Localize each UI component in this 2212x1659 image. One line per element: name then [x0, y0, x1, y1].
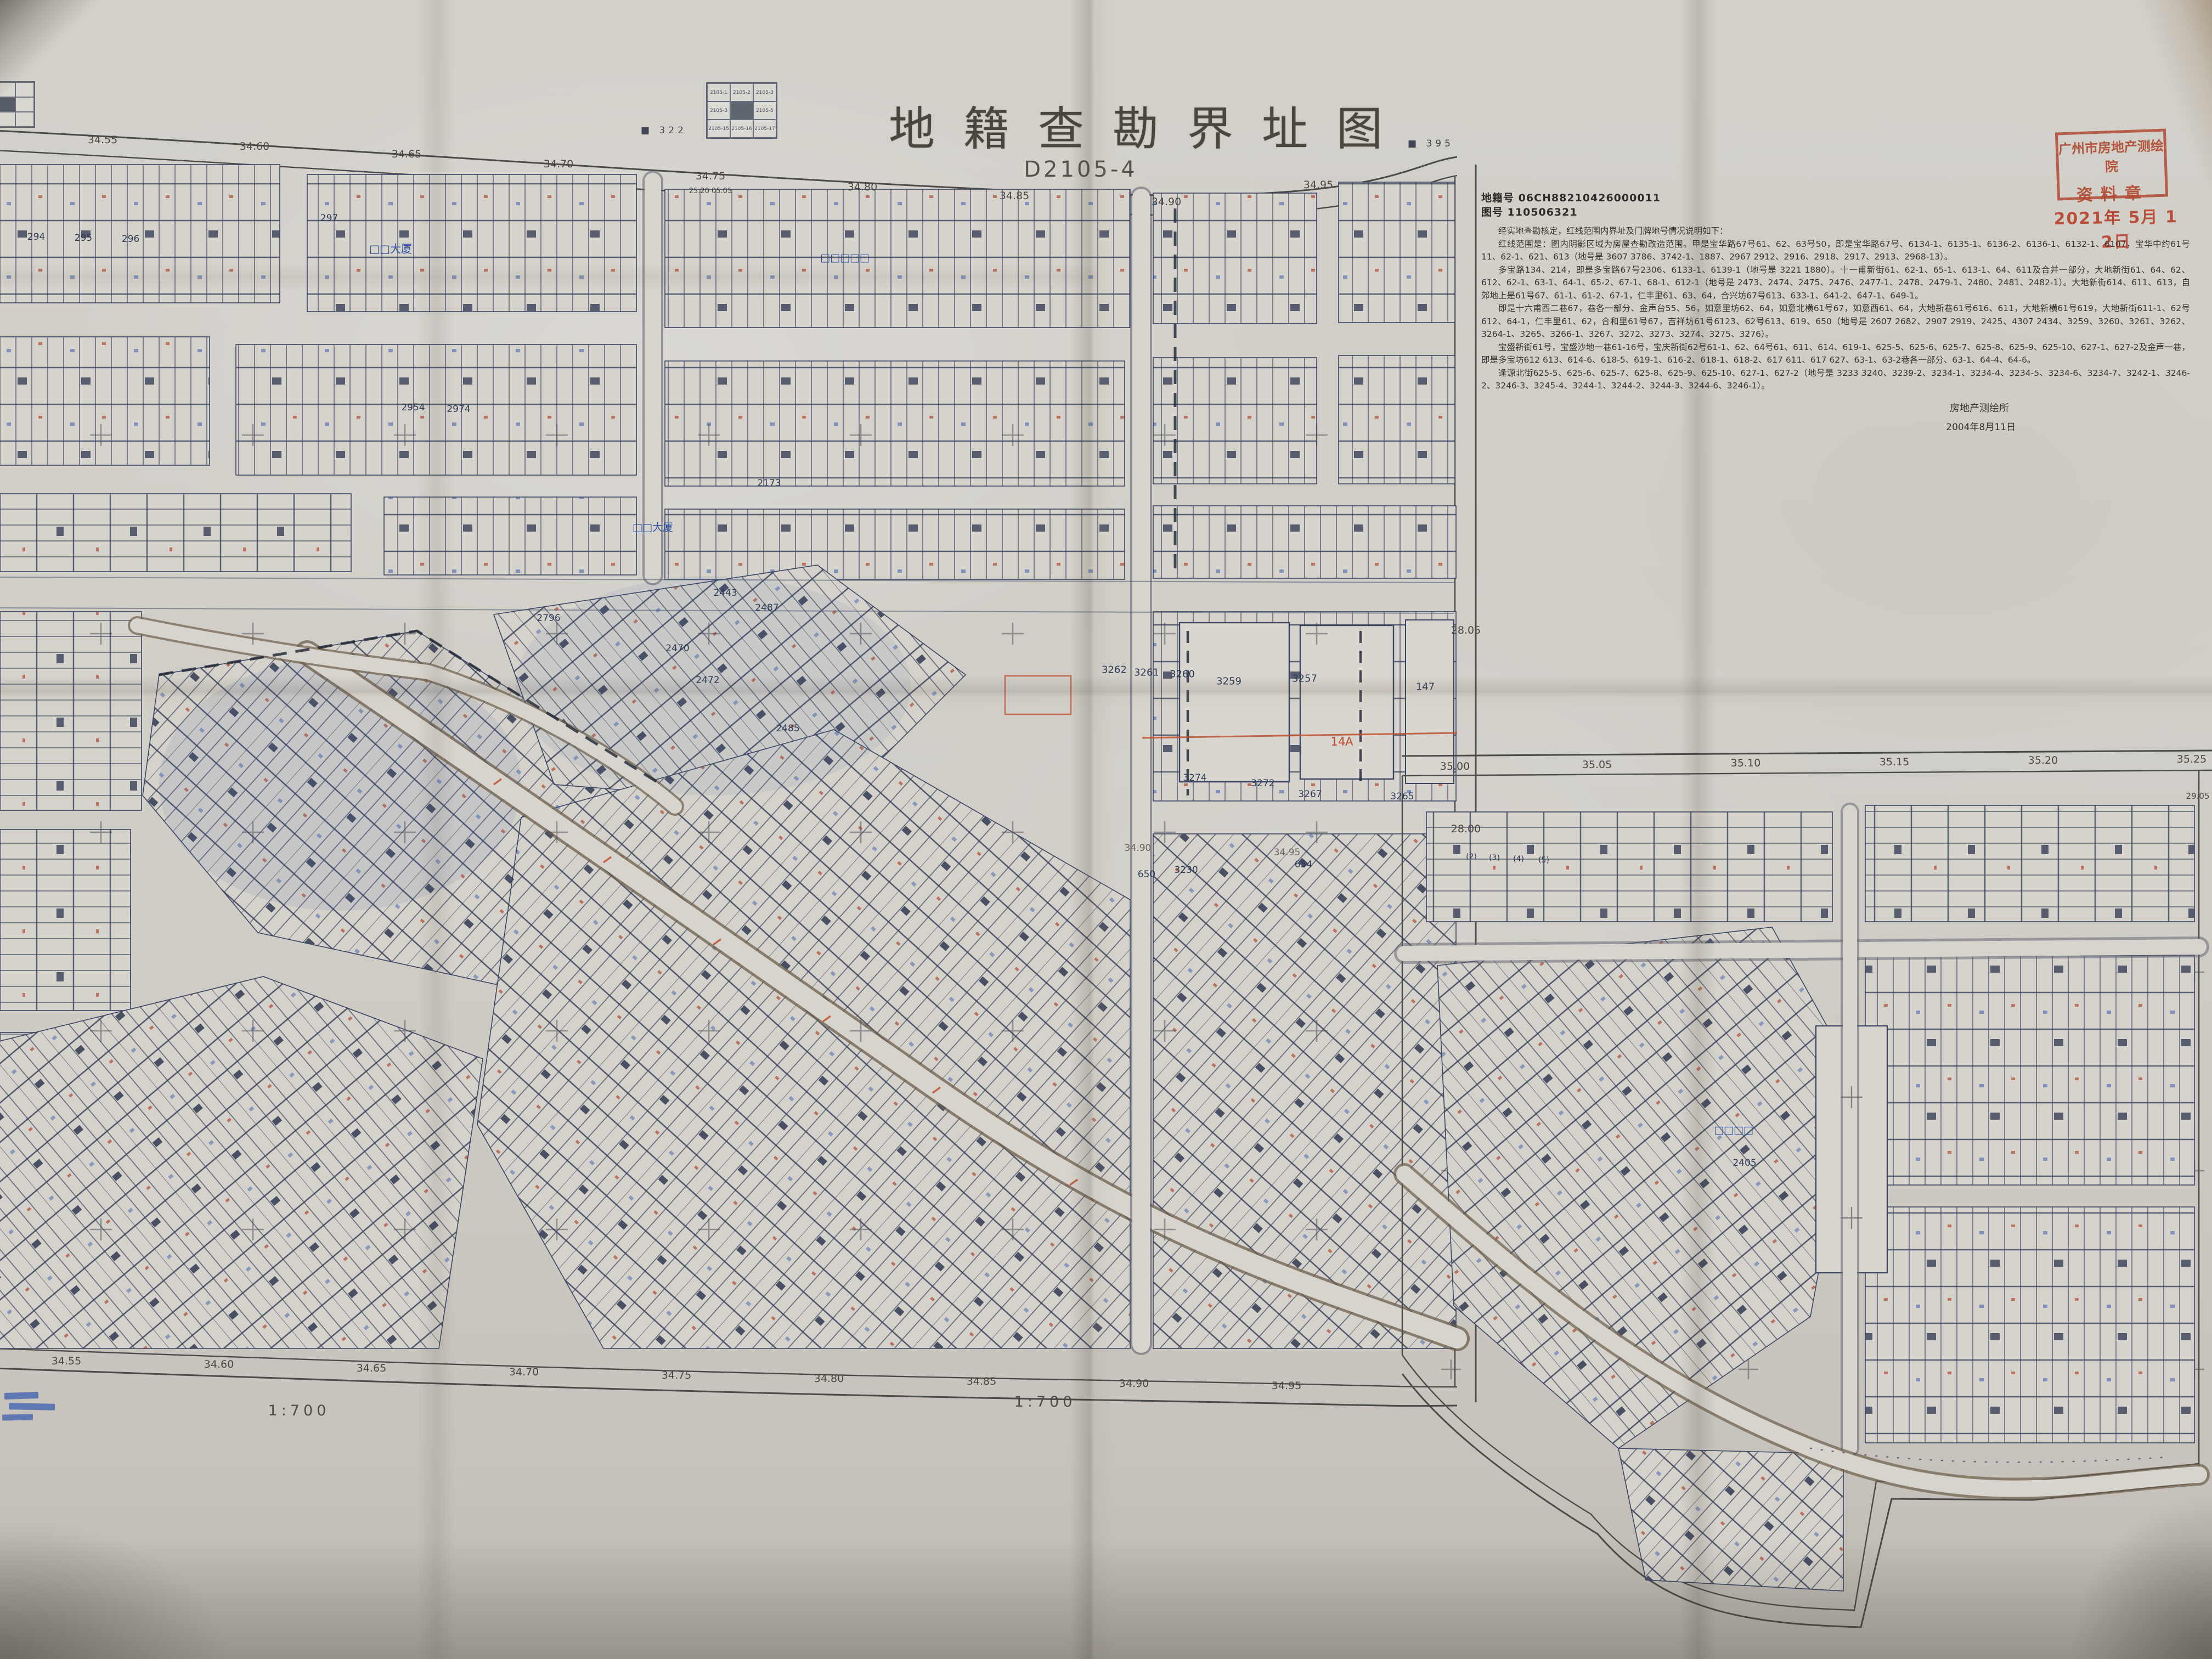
coordinate-tick: 28.05 — [1451, 624, 1481, 636]
adjacent-sheet-index-grid: 2105-12105-22105-32105-32105-52105-15210… — [706, 82, 777, 139]
coordinate-tick: 34.95 — [1304, 179, 1333, 191]
parcel-number: 3262 — [1102, 664, 1127, 676]
coordinate-tick: 34.80 — [848, 181, 877, 193]
sheet-index-cell — [0, 97, 15, 112]
parcel-number: 2796 — [537, 613, 560, 624]
coordinate-tick: 35.20 — [2028, 754, 2058, 766]
notes-paragraph: 多宝路134、214，即是多宝路67号2306、6133-1、6139-1（地号… — [1481, 264, 2190, 303]
parcel-number: 2954 — [401, 402, 425, 413]
coordinate-tick: 34.60 — [240, 140, 269, 153]
coordinate-tick: 34.65 — [357, 1362, 386, 1374]
sheet-index-cell: 2105-16 — [730, 120, 753, 138]
parcel-number: 650 — [1138, 869, 1155, 880]
sheet-index-cell: 2105-3 — [753, 83, 776, 101]
parcel-number: 2470 — [665, 643, 689, 654]
parcel-number: 297 — [320, 213, 338, 224]
parcel-number: 296 — [122, 234, 139, 245]
blue-ink-scribble — [9, 1403, 55, 1410]
sheet-index-cell: 2105-2 — [730, 83, 753, 101]
blue-ink-scribble — [2, 1414, 33, 1421]
panel2-corner-coordinate: 29.05 — [2186, 791, 2210, 801]
coordinate-tick: 35.10 — [1731, 757, 1760, 769]
parcel-number: (2) — [1466, 853, 1477, 861]
coordinate-tick: 35.25 — [2177, 753, 2207, 765]
coordinate-tick: 34.75 — [662, 1369, 691, 1381]
parcel-number: 2173 — [757, 478, 781, 489]
coordinate-tick: 35.05 — [1582, 759, 1612, 771]
coordinate-tick: 34.55 — [88, 134, 117, 146]
notes-paragraph: 宝盛新街61号，宝盛沙地一巷61-16号，宝庆新街62号61-1、62、64号6… — [1481, 341, 2190, 367]
notes-paragraph: 即是十六甫西二巷67，巷各一部分、金声台55、56，如意里坊62、64，如意北横… — [1481, 302, 2190, 341]
parcel-number: 3274 — [1183, 772, 1206, 783]
map-number: 图号 110506321 — [1481, 205, 2190, 219]
parcel-number: 3265 — [1390, 791, 1414, 802]
parcel-number: 2405 — [1733, 1158, 1756, 1169]
sheet-index-cell — [0, 112, 15, 127]
blue-ink-haze-2 — [516, 576, 911, 795]
parcel-number: 147 — [1416, 681, 1435, 693]
parcel-number: (4) — [1513, 855, 1524, 864]
corner-sheet-index-grid — [0, 81, 35, 128]
coordinate-tick: 34.85 — [967, 1375, 996, 1387]
parcel-number: 2974 — [447, 404, 470, 415]
parcel-number: (3) — [1489, 854, 1500, 862]
stamp-org-name: 广州市房地产测绘院 — [2058, 135, 2164, 177]
parcel-number: 2443 — [713, 588, 737, 599]
coordinate-tick: 35.00 — [1440, 760, 1470, 772]
notes-signature: 房地产测绘所 — [1481, 400, 2190, 415]
parcel-number: 3259 — [1216, 676, 1242, 687]
parcel-number: 2487 — [755, 602, 778, 613]
parcel-number: 3261 — [1134, 667, 1159, 679]
sheet-index-cell — [15, 112, 34, 127]
map-scale-label: 1:700 — [1014, 1393, 1076, 1410]
sheet-index-cell — [15, 82, 34, 97]
parcel-number: 654 — [1295, 859, 1312, 870]
parcel-blocks-panel2 — [1426, 805, 2194, 1591]
parcel-number: 34.90 — [1125, 843, 1152, 854]
coordinate-tick: 34.65 — [392, 148, 421, 160]
margin-code-left: ■ 322 — [641, 125, 687, 136]
coordinate-tick: 34.95 — [1272, 1380, 1301, 1392]
coordinate-tick: 34.75 — [696, 170, 725, 182]
parcel-number: 2485 — [776, 723, 799, 734]
parcel-number: 34.95 — [1274, 847, 1301, 858]
sheet-index-cell — [730, 101, 753, 120]
coordinate-tick: 28.00 — [1451, 823, 1481, 835]
building-name-label: □□□□□ — [820, 252, 870, 264]
parcel-number: 3257 — [1292, 673, 1317, 685]
coordinate-tick: 34.90 — [1119, 1378, 1149, 1390]
coordinate-tick: 34.70 — [509, 1366, 539, 1378]
boundary-notes-block: 地籍号 06CH88210426000011 图号 110506321 经实地查… — [1481, 191, 2190, 433]
parcel-number: 3260 — [1170, 669, 1195, 680]
sheet-index-cell: 2105-5 — [753, 101, 776, 120]
blue-ink-haze — [159, 658, 521, 911]
parcel-number: 2472 — [696, 675, 719, 686]
redact-stamp: 广州市房地产测绘院 资料章 — [2055, 129, 2168, 201]
coordinate-tick: 34.85 — [1000, 190, 1029, 202]
parcel-number: 3230 — [1174, 865, 1198, 876]
notes-paragraph: 红线范围是：图内阴影区域为房屋查勘改造范围。甲是宝华路67号61、62、63号5… — [1481, 238, 2190, 264]
parcel-number: 3267 — [1298, 789, 1322, 800]
coordinate-tick: 25.20 05.05 — [689, 187, 732, 195]
coordinate-tick: 34.80 — [814, 1373, 844, 1385]
parcel-number: 3272 — [1251, 778, 1274, 789]
map-title: 地籍查勘界址图 — [889, 92, 1306, 159]
parcel-number: 14A — [1330, 735, 1353, 748]
coordinate-tick: 34.70 — [544, 158, 573, 170]
sheet-index-cell: 2105-3 — [707, 101, 730, 120]
building-name-label: □□□□ — [1714, 1124, 1753, 1136]
map-scale-label: 1:700 — [268, 1402, 330, 1419]
coordinate-tick: 35.15 — [1880, 756, 1909, 768]
sheet-index-cell — [15, 97, 34, 112]
sheet-index-cell: 2105-15 — [707, 120, 730, 138]
building-name-label: □□大厦 — [633, 520, 673, 534]
sheet-number: D2105-4 — [982, 157, 1180, 182]
sheet-index-cell — [0, 82, 15, 97]
parcel-number: (5) — [1538, 856, 1549, 865]
coordinate-tick: 34.90 — [1152, 196, 1181, 208]
notes-paragraph: 经实地查勘核定，红线范围内界址及门牌地号情况说明如下： — [1481, 225, 2190, 238]
photo-of-cadastral-map: { "title": { "text": "地籍查勘界址图", "sheet_n… — [0, 0, 2212, 1659]
notes-signature-date: 2004年8月11日 — [1481, 419, 2190, 433]
registry-number: 地籍号 06CH88210426000011 — [1481, 191, 2190, 205]
margin-code-right: ■ 395 — [1408, 138, 1454, 149]
blue-ink-scribble — [4, 1392, 38, 1400]
coordinate-tick: 34.55 — [52, 1355, 81, 1367]
building-name-label: □□大厦 — [369, 240, 412, 256]
notes-paragraphs: 经实地查勘核定，红线范围内界址及门牌地号情况说明如下：红线范围是：图内阴影区域为… — [1481, 225, 2190, 393]
notes-paragraph: 逢源北街625-5、625-6、625-7、625-8、625-9、625-10… — [1481, 367, 2190, 393]
parcel-number: 295 — [75, 233, 92, 244]
sheet-index-cell: 2105-17 — [753, 120, 776, 138]
coordinate-tick: 34.60 — [204, 1358, 234, 1370]
sheet-index-cell: 2105-1 — [707, 83, 730, 101]
parcel-number: 294 — [27, 232, 45, 242]
